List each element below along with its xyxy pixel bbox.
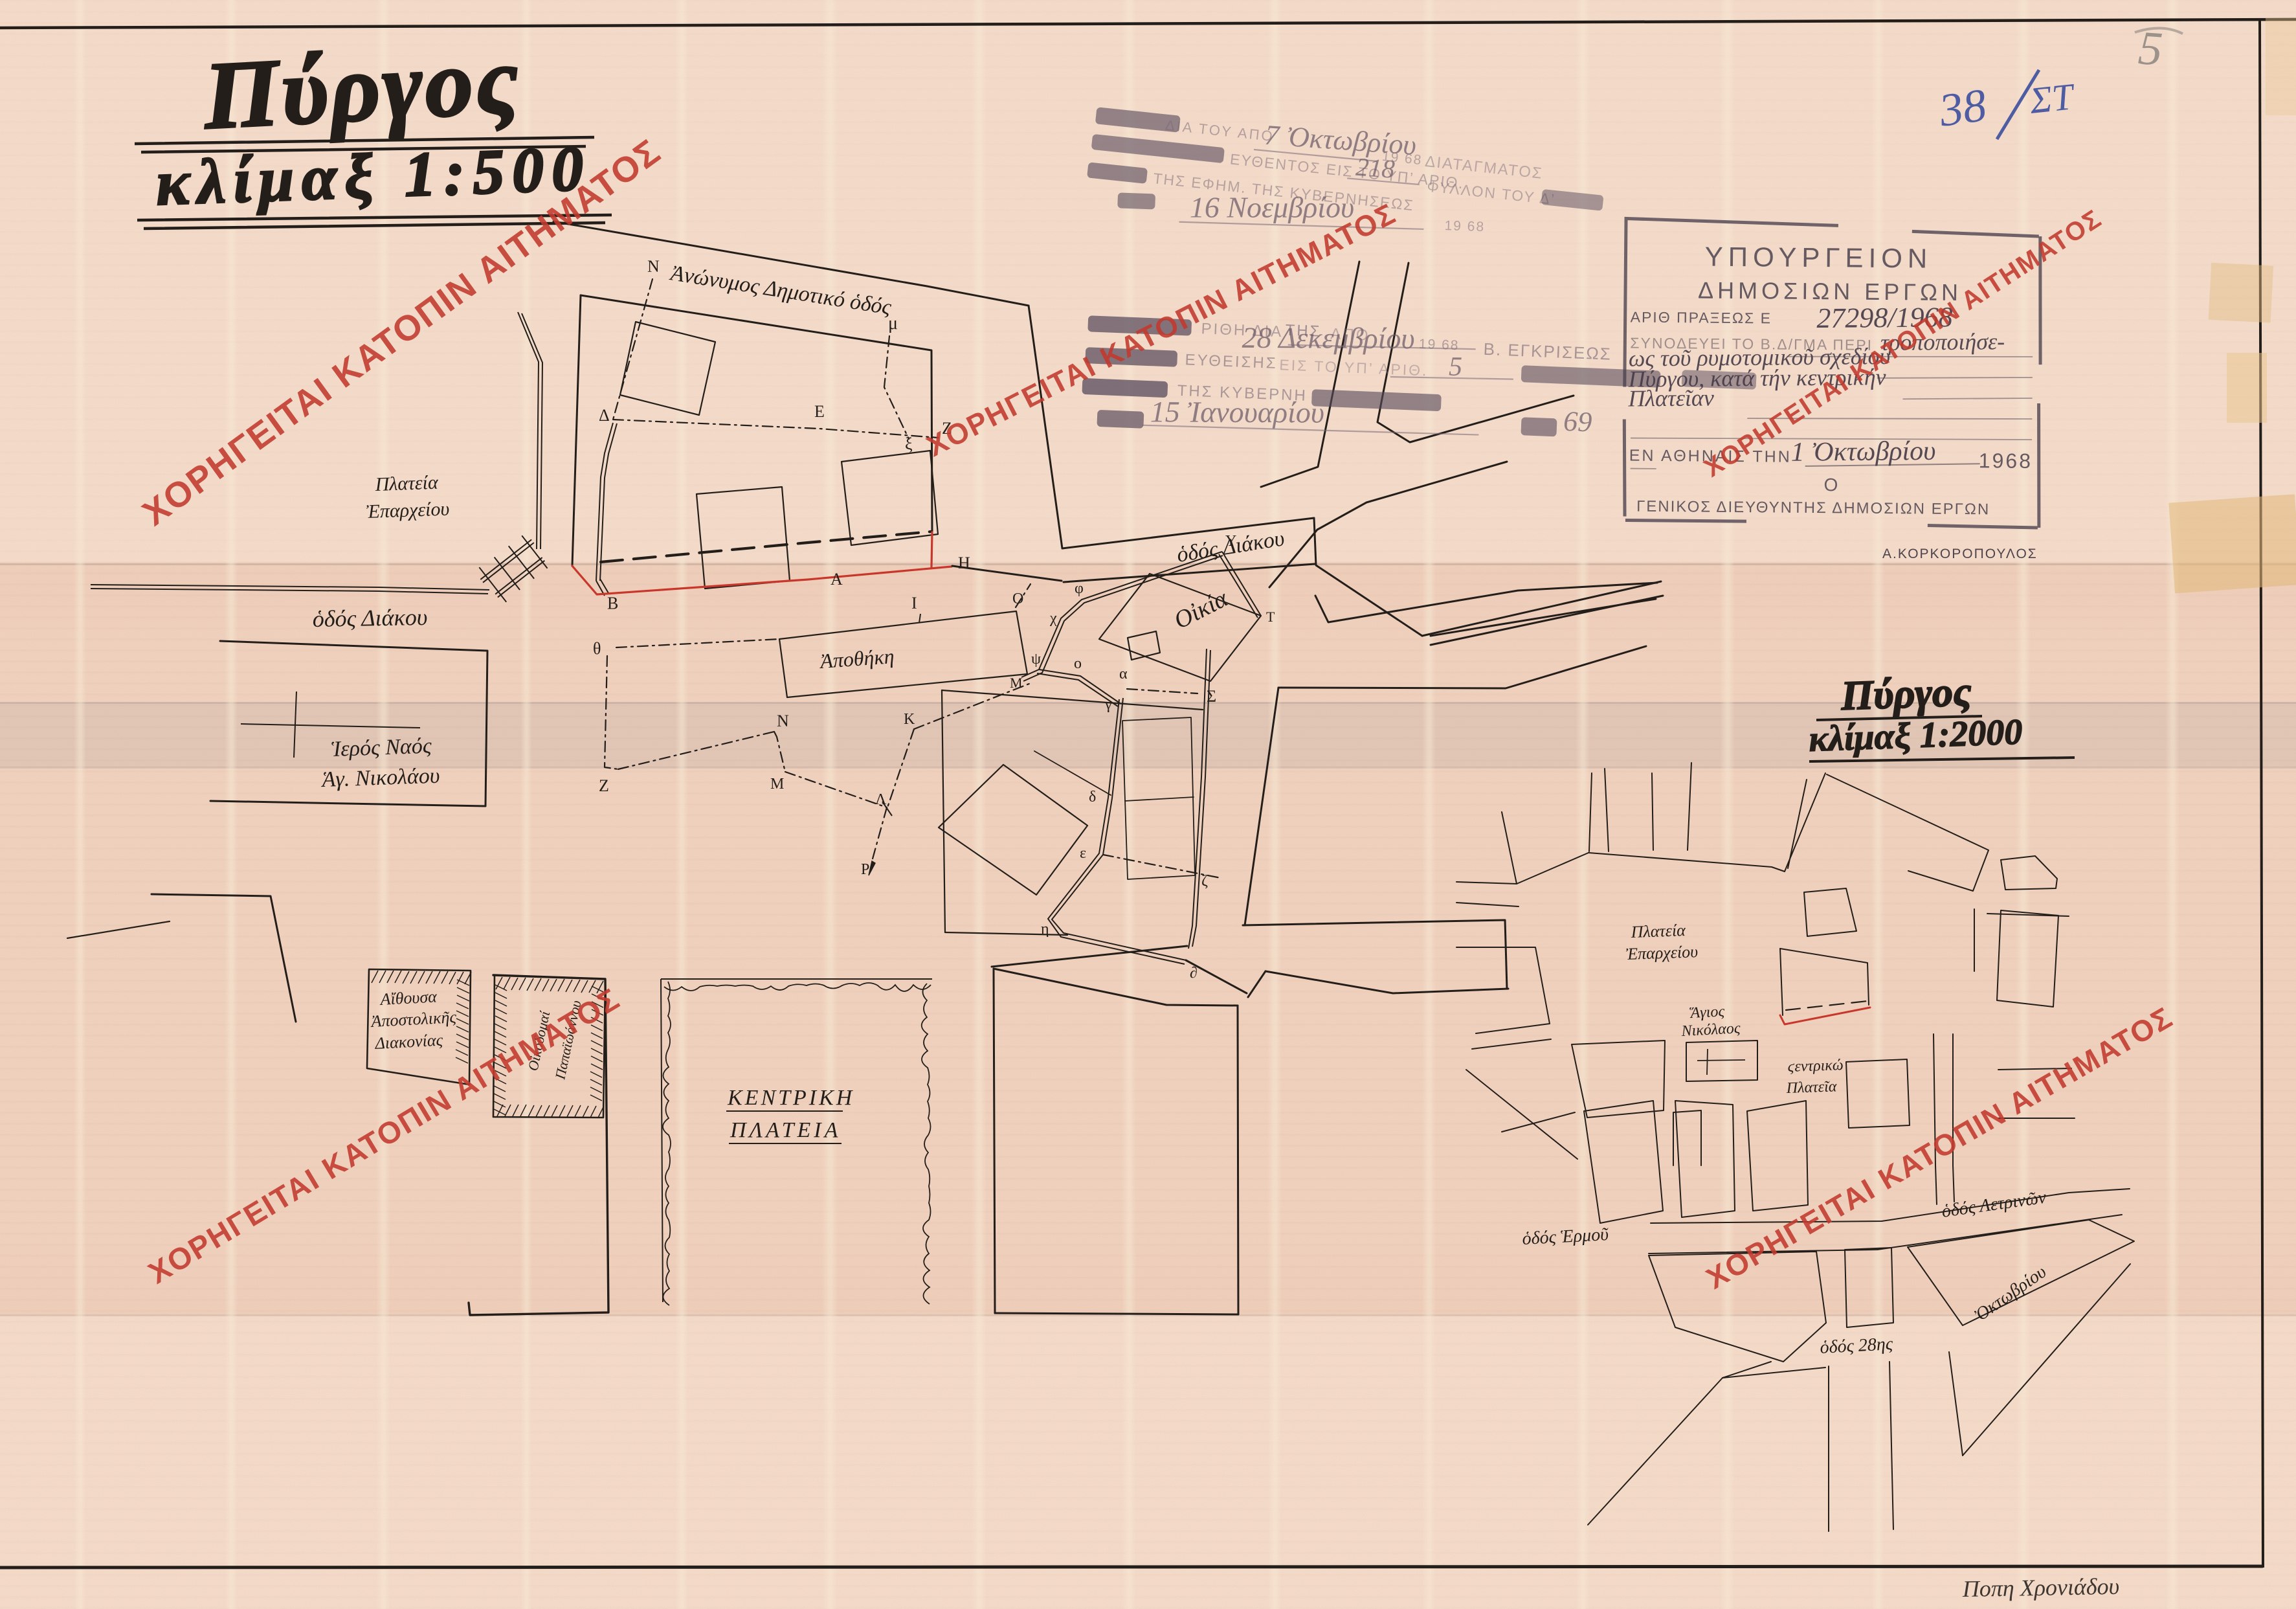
svg-text:ο: ο	[1074, 655, 1082, 672]
svg-text:ΚΕΝΤΡΙΚΗ: ΚΕΝΤΡΙΚΗ	[727, 1086, 854, 1110]
svg-text:Υ: Υ	[1225, 533, 1236, 550]
svg-text:ὁδός Λετρινῶν: ὁδός Λετρινῶν	[1941, 1187, 2048, 1222]
svg-text:Μ: Μ	[1010, 675, 1023, 691]
svg-text:Ρ: Ρ	[861, 861, 869, 878]
svg-text:Διακονίας: Διακονίας	[374, 1031, 443, 1053]
svg-text:Πλατεία: Πλατεία	[374, 472, 439, 495]
svg-text:Ἀνώνυμος Δημοτικό ὁδός: Ἀνώνυμος Δημοτικό ὁδός	[668, 261, 893, 320]
svg-text:Δ: Δ	[599, 406, 610, 425]
svg-text:ΔΙΑ ΤΟΥ ΑΠΟ: ΔΙΑ ΤΟΥ ΑΠΟ	[1165, 117, 1275, 145]
svg-text:Πύργος: Πύργος	[1840, 668, 1972, 719]
svg-text:ΥΠΟΥΡΓΕΙΟΝ: ΥΠΟΥΡΓΕΙΟΝ	[1705, 242, 1933, 274]
svg-text:1968: 1968	[1979, 449, 2033, 473]
svg-text:μ: μ	[888, 313, 898, 333]
svg-text:Αἴθουσα: Αἴθουσα	[379, 987, 438, 1009]
svg-text:Πλατεία: Πλατεία	[1630, 921, 1686, 941]
svg-text:Ζ: Ζ	[599, 776, 609, 795]
svg-text:Νικόλαος: Νικόλαος	[1680, 1020, 1741, 1040]
svg-text:69: 69	[1563, 405, 1592, 438]
svg-text:δ: δ	[1089, 789, 1096, 805]
svg-text:Οἰκία: Οἰκία	[1170, 585, 1232, 635]
svg-text:Πύργος: Πύργος	[200, 27, 523, 150]
svg-text:Πλατεῖα: Πλατεῖα	[1785, 1078, 1837, 1097]
svg-text:Ἐπαρχείου: Ἐπαρχείου	[366, 499, 450, 523]
svg-text:Ε: Ε	[814, 402, 825, 421]
svg-text:ὁδός 28ης: ὁδός 28ης	[1820, 1334, 1894, 1358]
svg-text:Ν: Ν	[647, 257, 660, 276]
svg-text:ὁδός Ἑρμοῦ: ὁδός Ἑρμοῦ	[1522, 1224, 1609, 1249]
svg-text:Ἅγιος: Ἅγιος	[1689, 1003, 1725, 1022]
svg-text:ψ: ψ	[1031, 651, 1041, 668]
svg-text:ΕΙΣ ΤΟ ΥΠ’ ΑΡΙΘ.: ΕΙΣ ΤΟ ΥΠ’ ΑΡΙΘ.	[1279, 356, 1429, 379]
svg-text:ΑΡΙΘ ΠΡΑΞΕΩΣ Ε: ΑΡΙΘ ΠΡΑΞΕΩΣ Ε	[1631, 309, 1772, 327]
svg-text:Α.ΚΟΡΚΟΡΟΠΟΥΛΟΣ: Α.ΚΟΡΚΟΡΟΠΟΥΛΟΣ	[1882, 546, 2038, 561]
svg-text:Ἐπαρχείου: Ἐπαρχείου	[1625, 942, 1698, 963]
svg-text:Μ: Μ	[770, 776, 784, 793]
svg-text:α: α	[1119, 666, 1128, 682]
svg-text:ΣΤ: ΣΤ	[2027, 75, 2078, 122]
svg-text:κλίμαξ 1:500: κλίμαξ 1:500	[155, 134, 592, 219]
svg-text:χ: χ	[1049, 610, 1057, 627]
svg-text:19 68: 19 68	[1444, 218, 1485, 234]
svg-text:Ἀποστολικῆς: Ἀποστολικῆς	[370, 1007, 457, 1031]
svg-text:Ὀκτωβρίου: Ὀκτωβρίου	[1970, 1262, 2050, 1326]
svg-text:Ο: Ο	[1823, 475, 1838, 495]
svg-text:Ἀποθήκη: Ἀποθήκη	[818, 644, 895, 673]
svg-text:Ποπη Χρονιάδου: Ποπη Χρονιάδου	[1961, 1573, 2119, 1602]
svg-text:1 Ὀκτωβρίου: 1 Ὀκτωβρίου	[1790, 436, 1935, 467]
svg-text:Κ: Κ	[904, 711, 915, 728]
svg-text:ϛεντρικώ: ϛεντρικώ	[1787, 1057, 1844, 1075]
svg-text:ΓΕΝΙΚΟΣ ΔΙΕΥΘΥΝΤΗΣ ΔΗΜΟΣΙΩΝ: ΓΕΝΙΚΟΣ ΔΙΕΥΘΥΝΤΗΣ ΔΗΜΟΣΙΩΝ ΕΡΓΩΝ	[1636, 498, 1990, 519]
svg-text:Ἁγ. Νικολάου: Ἁγ. Νικολάου	[320, 764, 440, 792]
svg-text:ΕΥΘΕΙΣΗΣ: ΕΥΘΕΙΣΗΣ	[1185, 351, 1278, 372]
svg-text:28 Δεκεμβρίου: 28 Δεκεμβρίου	[1242, 321, 1414, 355]
svg-text:∂: ∂	[1190, 965, 1198, 982]
svg-text:Ι: Ι	[911, 594, 917, 613]
svg-text:ΧΟΡΗΓΕΙΤΑΙ ΚΑΤΟΠΙΝ ΑΙΤΗΜΑΤΟΣ: ΧΟΡΗΓΕΙΤΑΙ ΚΑΤΟΠΙΝ ΑΙΤΗΜΑΤΟΣ	[1700, 1000, 2178, 1295]
svg-text:ὁδός Διάκου: ὁδός Διάκου	[312, 604, 427, 632]
svg-text:ε: ε	[1080, 845, 1086, 862]
svg-text:Τ: Τ	[1266, 609, 1275, 625]
svg-text:19 68: 19 68	[1418, 337, 1459, 353]
svg-text:Β. ΕΓΚΡΙΣΕΩΣ: Β. ΕΓΚΡΙΣΕΩΣ	[1483, 339, 1612, 364]
svg-text:Β: Β	[607, 594, 618, 613]
svg-text:ΦΥΛΛΟΝ ΤΟΥ Δ’: ΦΥΛΛΟΝ ΤΟΥ Δ’	[1426, 177, 1556, 208]
svg-text:Α: Α	[830, 570, 843, 589]
svg-text:15 Ἰανουαρίου: 15 Ἰανουαρίου	[1150, 395, 1324, 429]
svg-text:θ: θ	[593, 639, 601, 658]
svg-text:Ν: Ν	[777, 712, 789, 730]
svg-text:Ἱερός Ναός: Ἱερός Ναός	[331, 734, 432, 761]
svg-text:η: η	[1041, 921, 1049, 938]
svg-text:γ: γ	[1104, 696, 1112, 713]
svg-text:38: 38	[1935, 79, 1989, 137]
svg-text:κλίμαξ 1:2000: κλίμαξ 1:2000	[1808, 712, 2023, 759]
svg-text:ΠΛΑΤΕΙΑ: ΠΛΑΤΕΙΑ	[730, 1118, 841, 1142]
svg-text:Η: Η	[958, 554, 970, 572]
svg-text:ζ: ζ	[1201, 873, 1208, 890]
svg-text:16 Νοεμβρίου: 16 Νοεμβρίου	[1190, 190, 1354, 223]
svg-text:φ: φ	[1075, 580, 1084, 597]
svg-text:Πλατεῖαν: Πλατεῖαν	[1627, 385, 1714, 411]
